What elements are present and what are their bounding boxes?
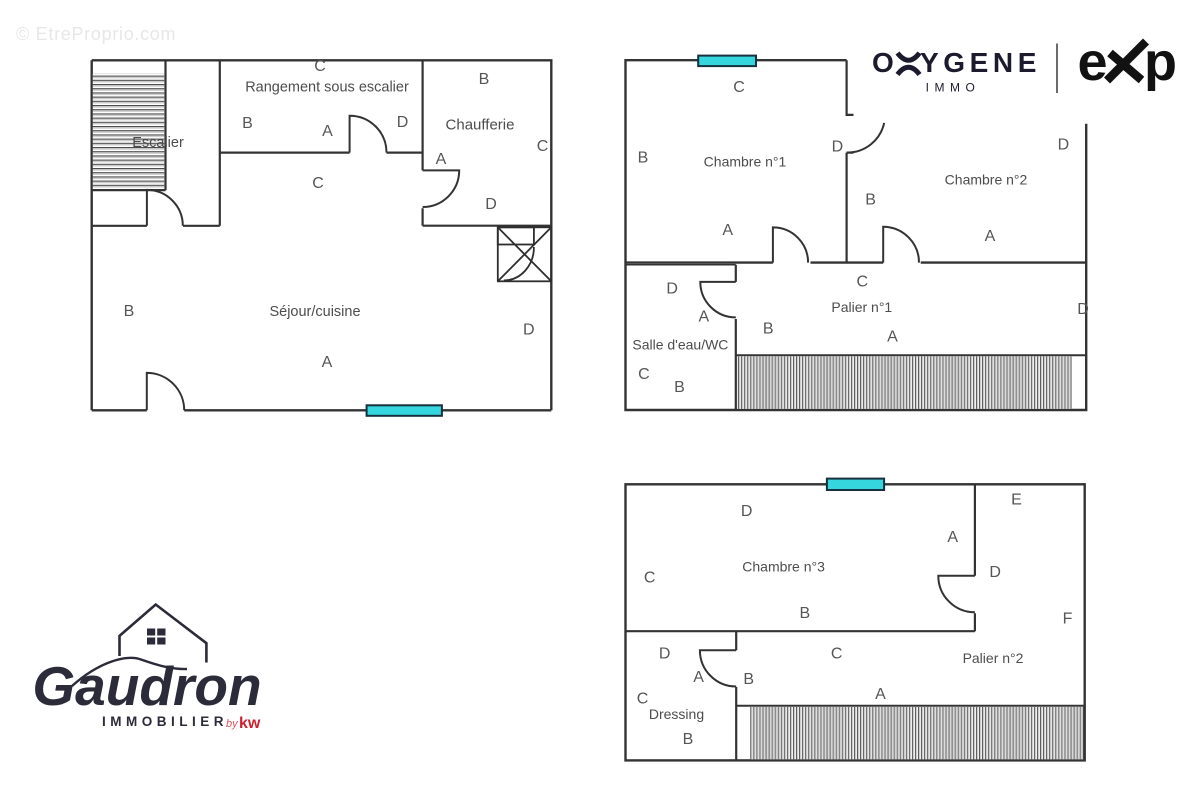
- svg-text:B: B: [683, 731, 694, 748]
- svg-text:D: D: [1058, 137, 1070, 154]
- svg-text:D: D: [832, 138, 844, 155]
- svg-text:C: C: [537, 138, 549, 155]
- svg-text:e: e: [1078, 32, 1108, 92]
- svg-text:C: C: [733, 79, 745, 96]
- svg-text:O: O: [872, 47, 894, 78]
- svg-text:A: A: [985, 228, 996, 245]
- svg-text:p: p: [1144, 32, 1177, 92]
- svg-text:C: C: [314, 58, 326, 75]
- svg-text:C: C: [637, 691, 649, 708]
- svg-text:B: B: [763, 321, 774, 338]
- svg-text:IMMOBILIER: IMMOBILIER: [102, 714, 228, 729]
- svg-text:B: B: [638, 150, 649, 167]
- svg-text:Palier n°1: Palier n°1: [831, 299, 892, 315]
- svg-text:D: D: [666, 281, 678, 298]
- svg-text:IMMO: IMMO: [926, 81, 981, 95]
- svg-text:E: E: [1011, 491, 1022, 508]
- svg-text:A: A: [722, 222, 733, 239]
- svg-text:A: A: [693, 669, 704, 686]
- svg-text:A: A: [436, 151, 447, 168]
- svg-text:D: D: [1077, 301, 1089, 318]
- svg-text:A: A: [887, 329, 898, 346]
- svg-text:Chambre n°3: Chambre n°3: [742, 559, 825, 575]
- svg-text:C: C: [312, 175, 324, 192]
- svg-text:A: A: [322, 354, 333, 371]
- svg-text:A: A: [698, 309, 709, 326]
- svg-text:B: B: [124, 303, 135, 320]
- svg-text:C: C: [831, 646, 843, 663]
- svg-text:© EtreProprio.com: © EtreProprio.com: [16, 24, 176, 44]
- svg-text:D: D: [485, 196, 497, 213]
- svg-text:by: by: [226, 718, 239, 730]
- svg-text:kw: kw: [239, 715, 261, 732]
- svg-text:Palier n°2: Palier n°2: [963, 650, 1024, 666]
- svg-text:Séjour/cuisine: Séjour/cuisine: [269, 304, 360, 320]
- svg-text:Escalier: Escalier: [132, 135, 184, 151]
- svg-text:A: A: [875, 686, 886, 703]
- svg-text:F: F: [1063, 611, 1073, 628]
- svg-text:Gaudron: Gaudron: [32, 655, 261, 717]
- svg-text:D: D: [741, 503, 753, 520]
- svg-text:Dressing: Dressing: [649, 706, 704, 722]
- svg-text:C: C: [644, 570, 656, 587]
- svg-text:C: C: [857, 274, 869, 291]
- svg-text:D: D: [659, 646, 671, 663]
- svg-text:B: B: [743, 671, 754, 688]
- svg-text:A: A: [322, 123, 333, 140]
- svg-text:B: B: [479, 71, 490, 88]
- svg-text:C: C: [638, 366, 650, 383]
- svg-text:B: B: [799, 605, 810, 622]
- svg-text:Chambre n°2: Chambre n°2: [945, 172, 1028, 188]
- svg-text:D: D: [989, 564, 1001, 581]
- svg-text:B: B: [865, 192, 876, 209]
- svg-text:YGENE: YGENE: [920, 47, 1041, 78]
- svg-text:Salle d'eau/WC: Salle d'eau/WC: [632, 337, 728, 353]
- svg-text:Rangement sous escalier: Rangement sous escalier: [245, 80, 409, 96]
- svg-text:D: D: [523, 322, 535, 339]
- svg-text:Chambre n°1: Chambre n°1: [704, 154, 787, 170]
- svg-text:B: B: [674, 379, 685, 396]
- svg-text:D: D: [397, 114, 409, 131]
- svg-text:Chaufferie: Chaufferie: [446, 117, 515, 134]
- svg-text:A: A: [947, 529, 958, 546]
- svg-text:B: B: [242, 115, 253, 132]
